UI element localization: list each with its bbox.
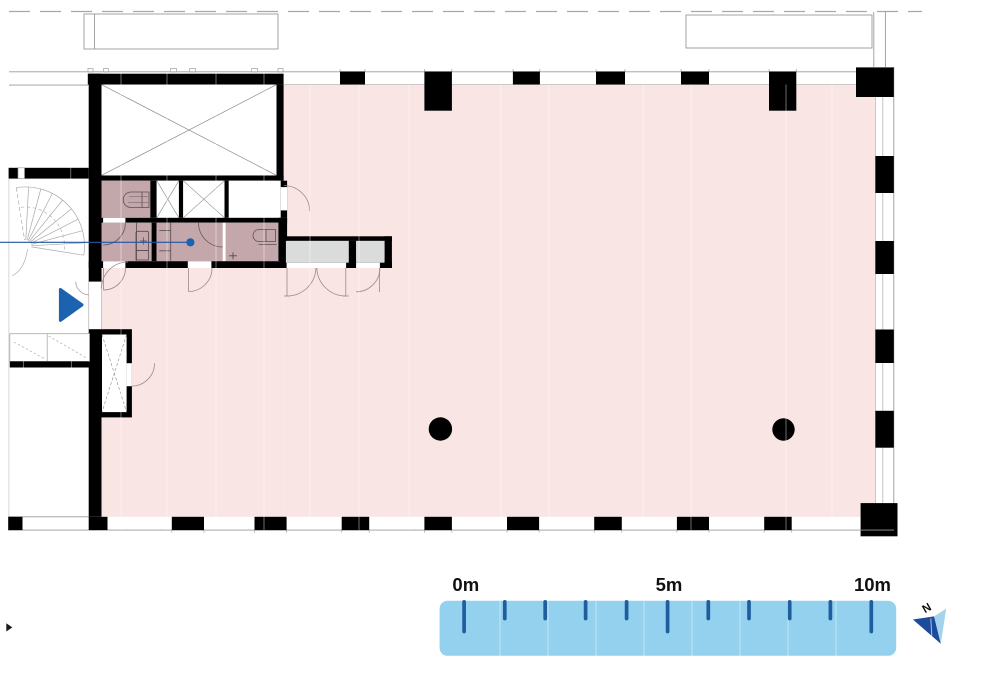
svg-text:5m: 5m bbox=[656, 574, 683, 595]
svg-text:10m: 10m bbox=[854, 574, 891, 595]
svg-text:0m: 0m bbox=[452, 574, 479, 595]
